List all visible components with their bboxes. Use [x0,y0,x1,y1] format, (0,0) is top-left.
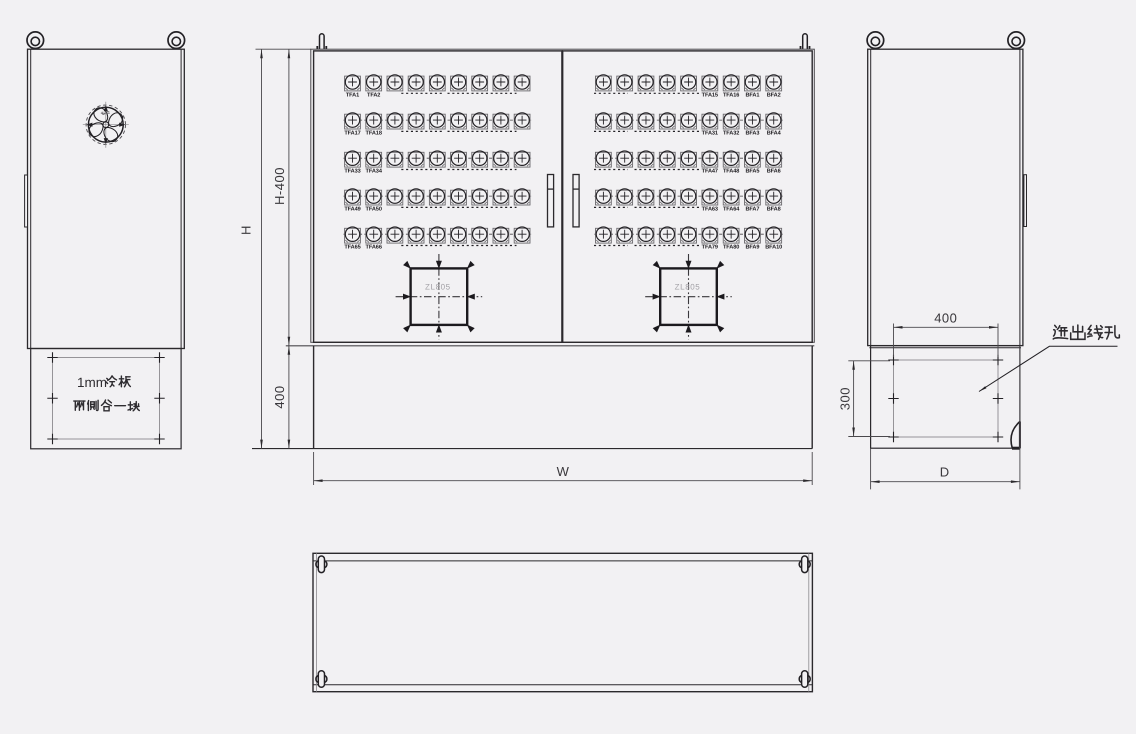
svg-text:ZL805: ZL805 [425,283,451,292]
svg-text:TFA17: TFA17 [344,130,360,136]
svg-text:BFA3: BFA3 [745,130,759,136]
svg-text:BFA2: BFA2 [767,92,781,98]
svg-text:TFA48: TFA48 [723,169,739,175]
svg-text:BFA5: BFA5 [745,169,759,175]
svg-text:TFA79: TFA79 [702,245,718,251]
svg-text:TFA47: TFA47 [702,169,718,175]
svg-text:400: 400 [934,311,957,326]
svg-text:400: 400 [272,385,287,408]
svg-text:TFA34: TFA34 [366,169,383,175]
svg-text:TFA32: TFA32 [723,130,739,136]
svg-text:BFA9: BFA9 [745,245,759,251]
svg-text:BFA1: BFA1 [745,92,759,98]
svg-text:300: 300 [838,387,853,410]
svg-text:TFA66: TFA66 [366,245,382,251]
svg-text:BFA10: BFA10 [765,245,782,251]
svg-text:W: W [557,464,570,479]
svg-text:TFA1: TFA1 [346,92,359,98]
svg-text:TFA33: TFA33 [344,169,360,175]
svg-text:BFA8: BFA8 [767,206,781,212]
svg-text:ZL805: ZL805 [675,283,701,292]
svg-text:TFA15: TFA15 [702,92,718,98]
svg-text:BFA6: BFA6 [767,169,781,175]
svg-text:TFA16: TFA16 [723,92,739,98]
svg-text:TFA50: TFA50 [366,206,382,212]
svg-text:TFA18: TFA18 [366,130,382,136]
svg-text:TFA64: TFA64 [723,206,740,212]
svg-text:TFA2: TFA2 [367,92,380,98]
svg-text:D: D [940,465,950,480]
svg-text:TFA63: TFA63 [702,206,718,212]
svg-text:TFA80: TFA80 [723,245,739,251]
svg-text:BFA7: BFA7 [745,206,759,212]
svg-text:1mm: 1mm [77,375,107,390]
svg-text:H: H [239,225,254,235]
svg-text:H-400: H-400 [272,167,287,205]
svg-text:BFA4: BFA4 [767,130,782,136]
svg-text:TFA65: TFA65 [344,245,360,251]
svg-text:TFA49: TFA49 [344,206,360,212]
svg-text:TFA31: TFA31 [702,130,718,136]
